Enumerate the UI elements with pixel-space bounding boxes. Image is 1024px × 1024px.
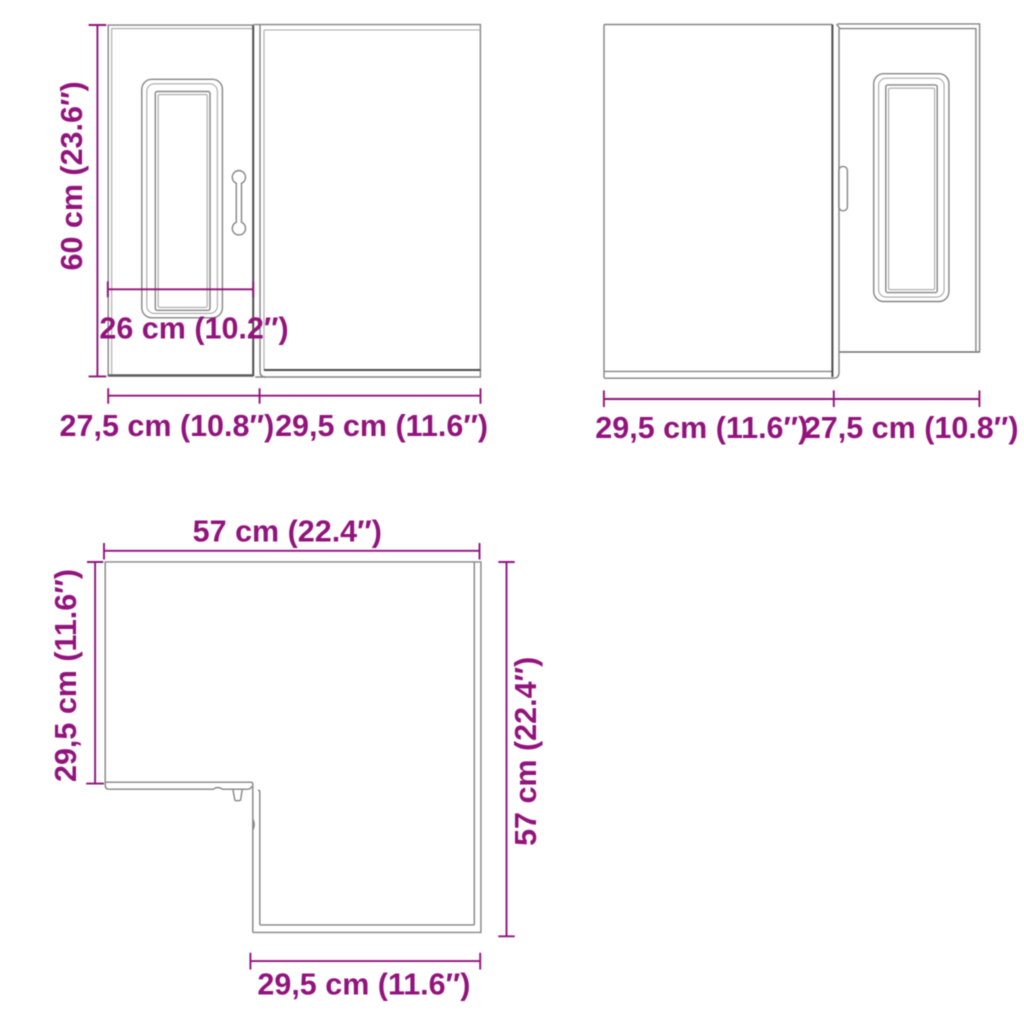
svg-text:27,5 cm (10.8″): 27,5 cm (10.8″) [60, 409, 275, 443]
svg-text:29,5 cm (11.6″): 29,5 cm (11.6″) [595, 411, 808, 445]
svg-text:29,5 cm (11.6″): 29,5 cm (11.6″) [257, 968, 470, 1002]
svg-text:29,5 cm (11.6″): 29,5 cm (11.6″) [275, 409, 488, 443]
svg-text:60 cm (23.6″): 60 cm (23.6″) [55, 81, 89, 270]
svg-text:57 cm (22.4″): 57 cm (22.4″) [509, 657, 543, 846]
svg-text:26 cm (10.2″): 26 cm (10.2″) [99, 312, 288, 346]
svg-text:27,5 cm (10.8″): 27,5 cm (10.8″) [804, 411, 1019, 445]
svg-text:29,5 cm (11.6″): 29,5 cm (11.6″) [49, 569, 83, 782]
svg-text:57 cm (22.4″): 57 cm (22.4″) [193, 515, 382, 549]
